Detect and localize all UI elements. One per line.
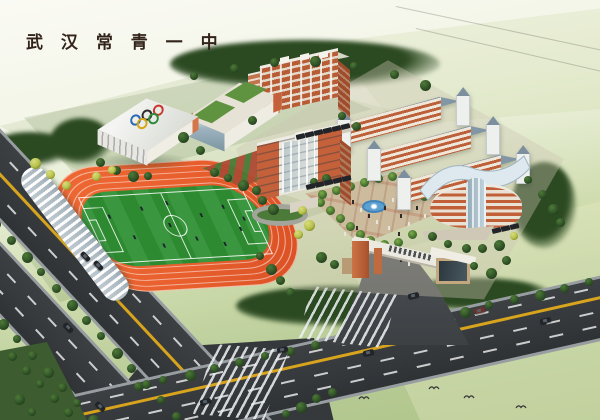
bird-icon xyxy=(428,384,440,391)
car xyxy=(95,401,106,412)
car xyxy=(93,260,104,271)
car xyxy=(540,317,552,324)
car xyxy=(363,349,375,356)
bird-icon xyxy=(515,403,527,410)
car xyxy=(200,398,212,405)
school-name-title: 武 汉 常 青 一 中 xyxy=(26,28,224,53)
bird-icon xyxy=(463,393,475,400)
road-traffic xyxy=(0,0,600,420)
car xyxy=(474,307,486,314)
bird-icon xyxy=(358,394,370,401)
car xyxy=(408,292,420,299)
car xyxy=(80,251,91,262)
car xyxy=(63,322,74,333)
car xyxy=(277,346,289,353)
campus-aerial-rendering: 武 汉 常 青 一 中 xyxy=(0,0,600,420)
